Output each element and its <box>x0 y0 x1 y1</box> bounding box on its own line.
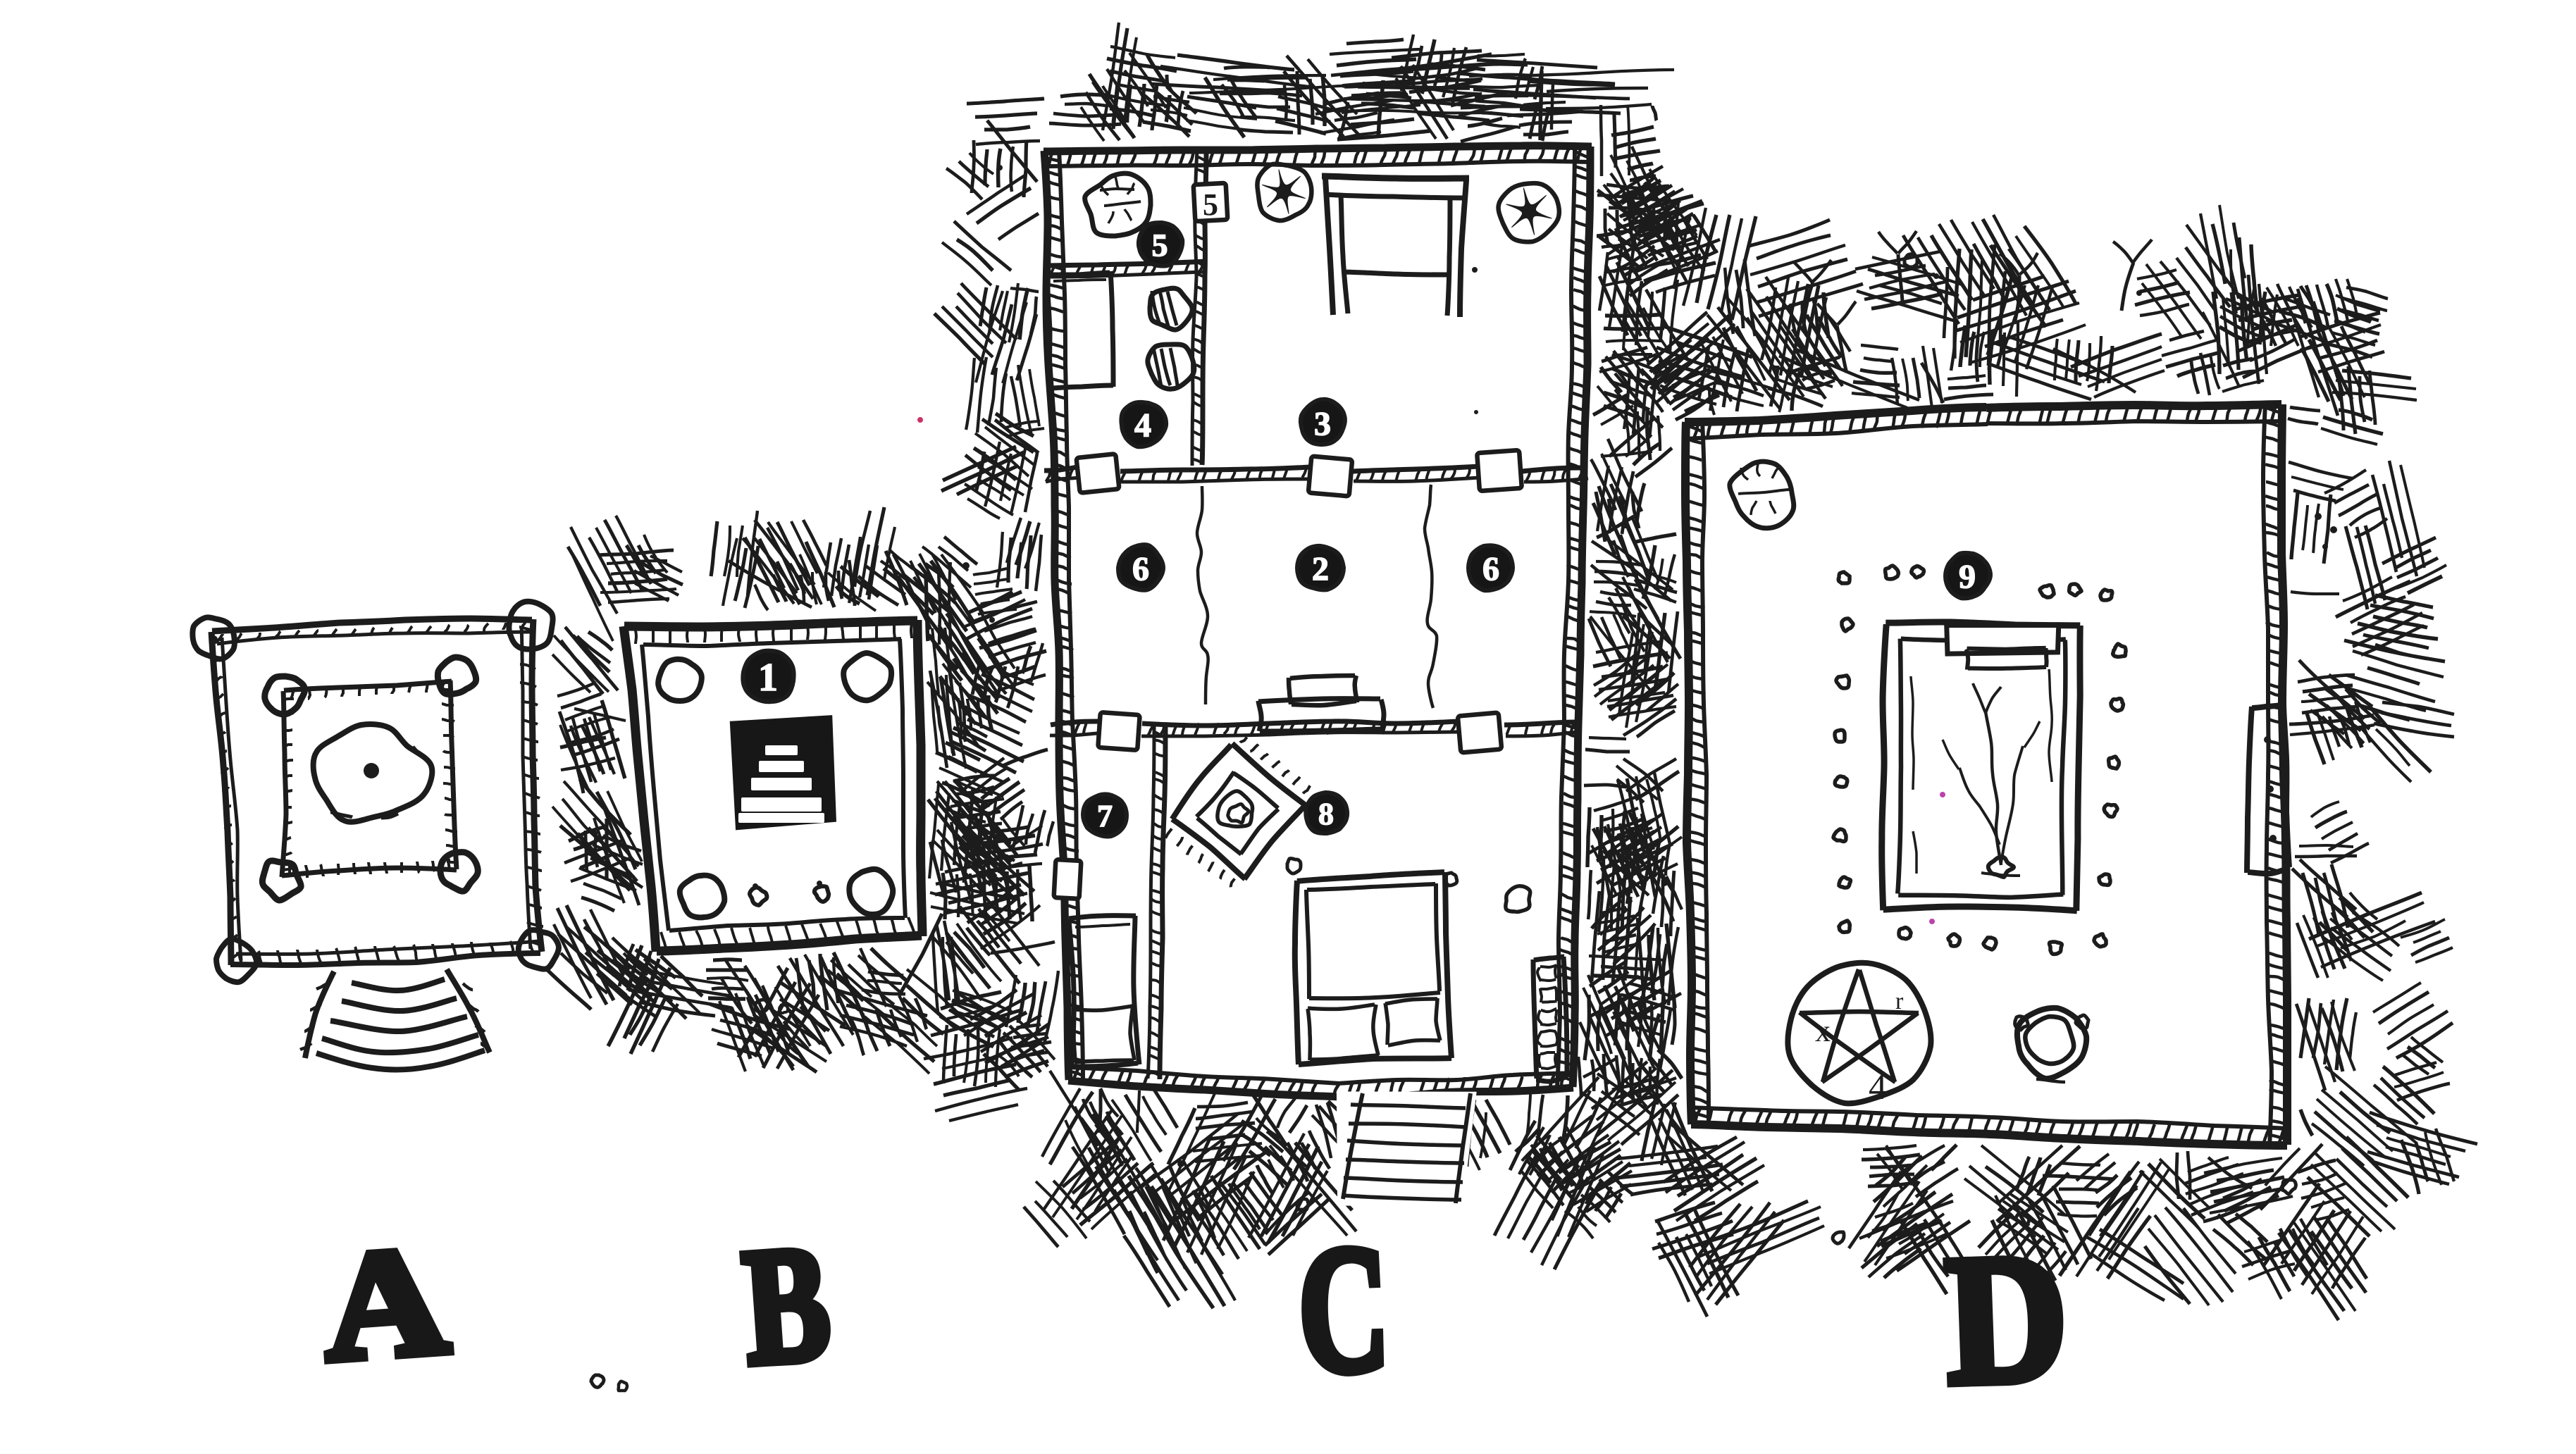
svg-text:1: 1 <box>758 656 778 700</box>
svg-text:B: B <box>738 1210 836 1399</box>
svg-text:8: 8 <box>1318 797 1334 831</box>
svg-text:4: 4 <box>1869 1067 1887 1107</box>
svg-text:5: 5 <box>1152 228 1168 263</box>
svg-text:7: 7 <box>1097 799 1113 833</box>
svg-text:r: r <box>1895 988 1904 1014</box>
svg-text:6: 6 <box>1482 550 1499 588</box>
svg-text:5: 5 <box>1203 187 1218 222</box>
svg-text:A: A <box>318 1213 453 1393</box>
svg-text:2: 2 <box>1312 550 1329 588</box>
svg-text:9: 9 <box>1959 558 1976 595</box>
svg-text:6: 6 <box>1132 550 1149 588</box>
svg-text:D: D <box>1943 1214 2071 1423</box>
svg-text:C: C <box>1295 1207 1392 1411</box>
svg-text:x: x <box>1815 1014 1831 1048</box>
svg-text:3: 3 <box>1314 405 1331 442</box>
svg-text:4: 4 <box>1134 406 1151 444</box>
